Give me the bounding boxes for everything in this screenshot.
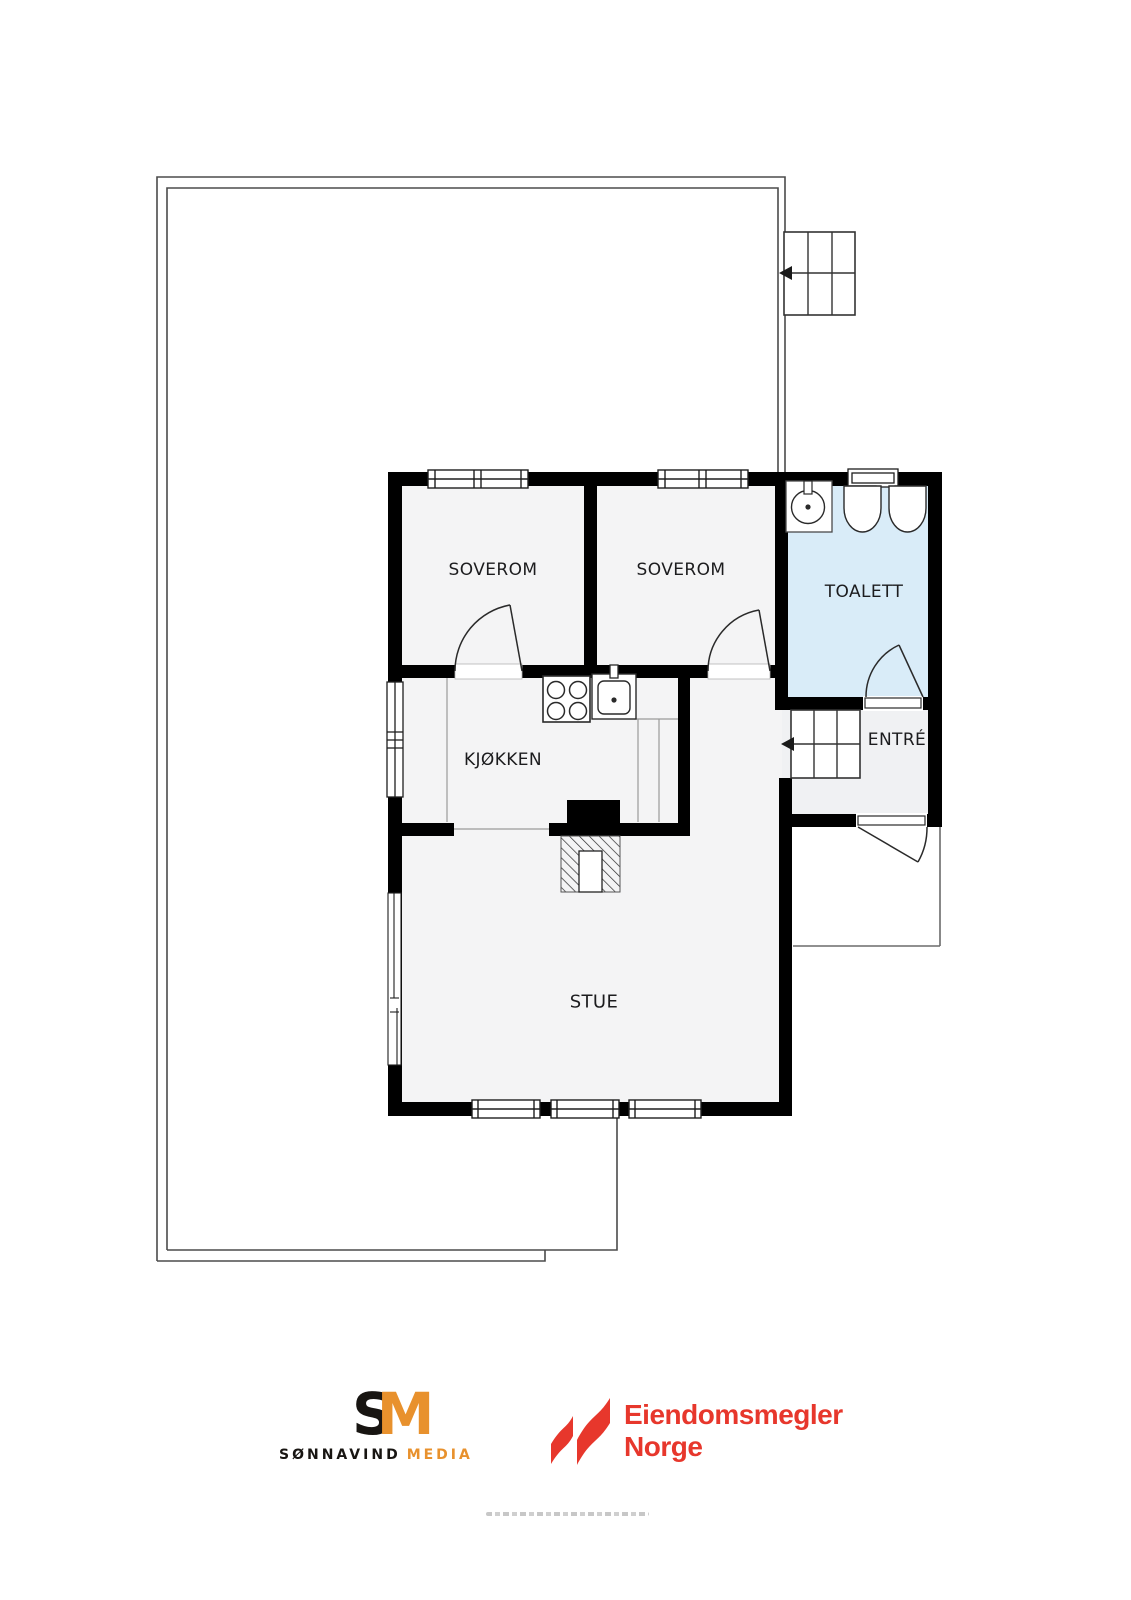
entry-stairs-icon	[781, 710, 860, 778]
agency-name-line1: Eiendomsmegler	[624, 1399, 843, 1431]
room-label-living-room: STUE	[570, 992, 619, 1013]
sonnavind-name: SØNNAVIND	[279, 1447, 401, 1463]
fireplace-icon	[561, 836, 620, 892]
window-icon	[387, 682, 403, 797]
sm-monogram-m: M	[377, 1380, 435, 1448]
floorplan-page: SOVEROM SOVEROM TOALETT KJØKKEN ENTRÉ ST…	[0, 0, 1131, 1600]
toilet-bowl-icon	[889, 486, 926, 532]
eiendomsmegler-norge-wordmark: Eiendomsmegler Norge	[624, 1399, 843, 1463]
room-label-entry: ENTRÉ	[868, 730, 926, 750]
media-suffix: MEDIA	[407, 1447, 473, 1463]
exterior-stairs-icon	[779, 232, 855, 315]
window-icon	[472, 1100, 540, 1118]
sonnavind-media-wordmark: SØNNAVINDMEDIA	[279, 1447, 493, 1463]
fine-print-line	[486, 1512, 649, 1516]
sonnavind-media-logo: SM	[352, 1386, 435, 1446]
window-icon	[388, 893, 401, 1065]
floor-plan-drawing	[0, 0, 1131, 1600]
door-swing-icon	[856, 813, 927, 862]
room-label-bedroom-1: SOVEROM	[449, 560, 538, 580]
agency-name-line2: Norge	[624, 1431, 843, 1463]
chimney-block	[567, 800, 620, 836]
toilet-bowl-icon	[844, 486, 881, 532]
window-icon	[428, 470, 528, 488]
window-icon	[629, 1100, 701, 1118]
window-icon	[658, 470, 748, 488]
toilet-sink-icon	[786, 481, 832, 532]
window-icon	[848, 469, 898, 487]
room-label-bedroom-2: SOVEROM	[637, 560, 726, 580]
window-icon	[551, 1100, 619, 1118]
room-label-toilet: TOALETT	[825, 582, 904, 602]
porch-outline	[793, 827, 940, 946]
room-label-kitchen: KJØKKEN	[464, 750, 542, 770]
stove-icon	[543, 676, 590, 722]
eiendomsmegler-norge-logo-icon	[549, 1398, 617, 1470]
